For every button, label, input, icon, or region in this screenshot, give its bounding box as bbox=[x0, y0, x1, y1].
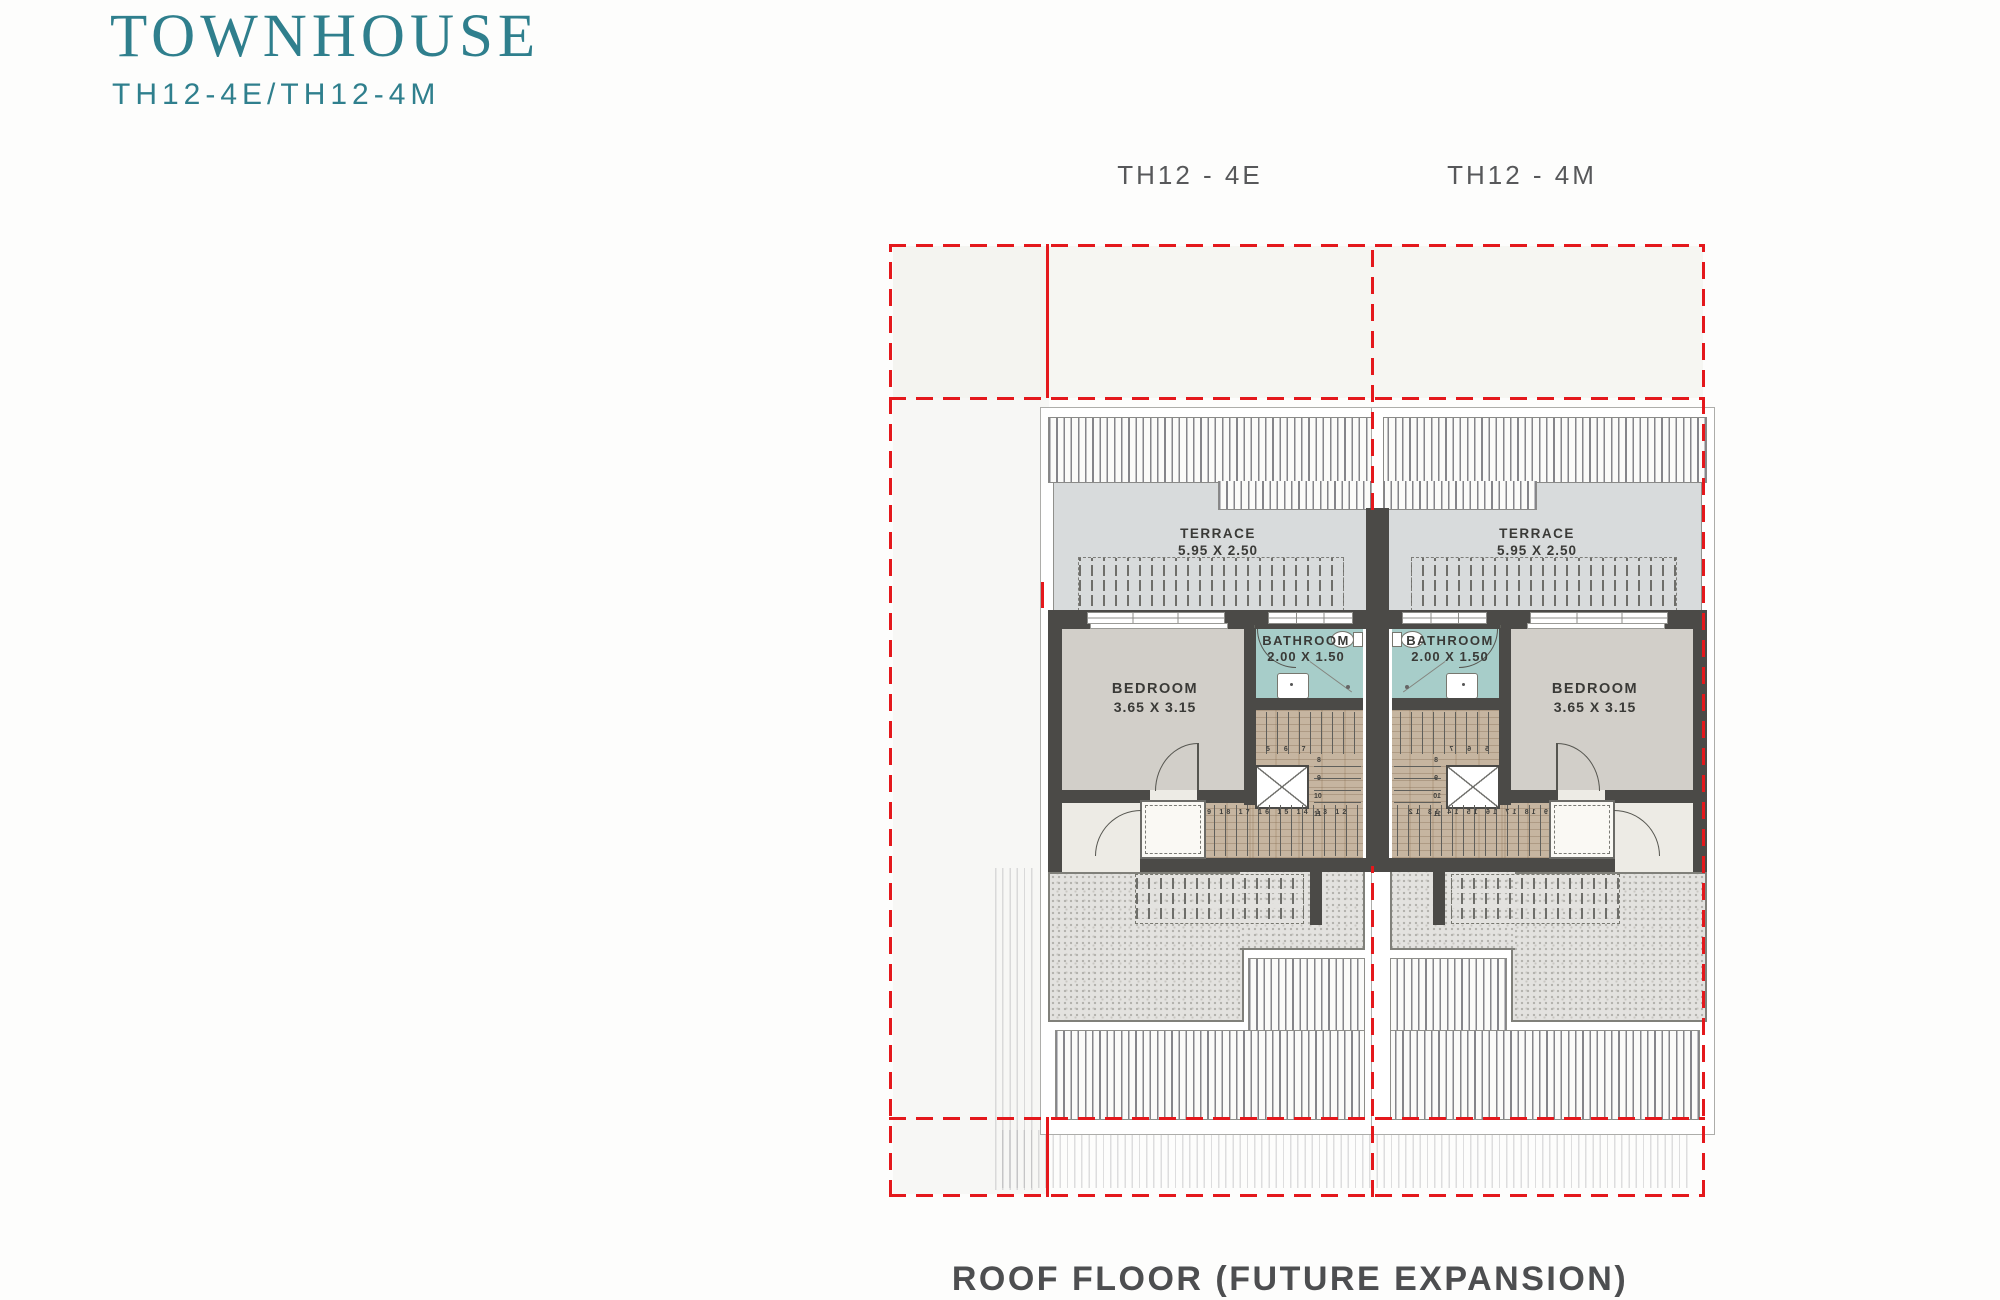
stair-number: 10 bbox=[1433, 793, 1441, 800]
red-boundary-top bbox=[889, 244, 1705, 247]
floorplan-sheet: TOWNHOUSE TH12-4E/TH12-4M TH12 - 4E TH12… bbox=[0, 0, 2000, 1300]
red-boundary-lower bbox=[889, 1117, 1705, 1120]
terrace-door-panel-frame bbox=[1145, 805, 1201, 854]
bathroom-bottom-wall bbox=[1392, 698, 1507, 710]
sink-icon bbox=[1277, 673, 1309, 699]
bedroom-bottom-wall bbox=[1048, 790, 1150, 803]
bottom-wall bbox=[1383, 858, 1615, 872]
unit-plan-th12-4m: 5 6 7 8 9 10 11 19 18 17 16 15 14 13 12 bbox=[1377, 413, 1707, 1153]
room-dims: 5.95 X 2.50 bbox=[1437, 543, 1637, 559]
room-name: TERRACE bbox=[1437, 526, 1637, 542]
room-dims: 3.65 X 3.15 bbox=[1503, 699, 1687, 715]
louver-roof-bottom bbox=[1390, 1030, 1700, 1120]
shower-drain-icon bbox=[1405, 685, 1409, 689]
red-boundary-right bbox=[1702, 244, 1705, 1197]
page-subtitle: TH12-4E/TH12-4M bbox=[112, 78, 440, 112]
sink-drain-icon bbox=[1462, 683, 1465, 686]
bathroom-window bbox=[1402, 612, 1487, 624]
unit-label-th12-4m: TH12 - 4M bbox=[1372, 160, 1672, 191]
sink-icon bbox=[1446, 673, 1478, 699]
room-dims: 3.65 X 3.15 bbox=[1063, 699, 1247, 715]
shower-drain-icon bbox=[1346, 685, 1350, 689]
room-dims: 5.95 X 2.50 bbox=[1118, 543, 1318, 559]
sink-drain-icon bbox=[1290, 683, 1293, 686]
unit-label-th12-4e: TH12 - 4E bbox=[1040, 160, 1340, 191]
stair-number: 10 bbox=[1314, 793, 1322, 800]
stair-numbers-bottom: 19 18 17 16 15 14 13 12 bbox=[1405, 809, 1555, 816]
room-name: BATHROOM bbox=[1394, 634, 1506, 649]
pergola-louver-extension bbox=[1383, 481, 1537, 510]
terrace-door-panel bbox=[1549, 800, 1615, 859]
stair-void-icon bbox=[1446, 765, 1500, 809]
pergola-louver-extension bbox=[1218, 481, 1372, 510]
louver-roof-center bbox=[1390, 958, 1507, 1034]
terrace-door-panel bbox=[1140, 800, 1206, 859]
stair-numbers-bottom: 19 18 17 16 15 14 13 12 bbox=[1200, 809, 1350, 816]
red-party-line-top bbox=[1371, 244, 1374, 510]
stair-numbers-top: 5 6 7 bbox=[1443, 746, 1489, 753]
stair-void-icon bbox=[1255, 765, 1309, 809]
red-boundary-mid bbox=[889, 397, 1705, 400]
bathroom-bottom-wall bbox=[1248, 698, 1363, 710]
terrace-door-panel-frame bbox=[1554, 805, 1610, 854]
pergola-louver-roof bbox=[1048, 417, 1372, 483]
terrace-label-left: TERRACE 5.95 X 2.50 bbox=[1118, 526, 1318, 558]
room-dims: 2.00 X 1.50 bbox=[1394, 650, 1506, 665]
louver-roof-center bbox=[1248, 958, 1365, 1034]
bathroom-window bbox=[1268, 612, 1353, 624]
room-name: BATHROOM bbox=[1250, 634, 1362, 649]
red-boundary-left bbox=[889, 244, 892, 1197]
stair-number: 9 bbox=[1317, 775, 1321, 782]
page-title: TOWNHOUSE bbox=[110, 2, 540, 72]
bedroom-bottom-wall bbox=[1605, 790, 1707, 803]
red-party-line-bottom bbox=[1371, 866, 1374, 1197]
stair-number: 8 bbox=[1434, 757, 1438, 764]
floor-caption: ROOF FLOOR (FUTURE EXPANSION) bbox=[900, 1260, 1680, 1299]
room-name: TERRACE bbox=[1118, 526, 1318, 542]
room-dims: 2.00 X 1.50 bbox=[1250, 650, 1362, 665]
party-wall bbox=[1366, 508, 1389, 872]
wall-stub bbox=[1310, 868, 1322, 925]
outer-wall-left bbox=[1048, 610, 1062, 872]
red-line-inner-mid bbox=[1041, 582, 1044, 608]
bedroom-label-left: BEDROOM 3.65 X 3.15 bbox=[1063, 681, 1247, 715]
trellis-shadow bbox=[1135, 874, 1304, 924]
pergola-louver-roof bbox=[1383, 417, 1707, 483]
terrace-label-right: TERRACE 5.95 X 2.50 bbox=[1437, 526, 1637, 558]
bottom-wall bbox=[1140, 858, 1372, 872]
red-boundary-bottom bbox=[889, 1194, 1705, 1197]
bathroom-label-left: BATHROOM 2.00 X 1.50 bbox=[1250, 634, 1362, 665]
louver-roof-bottom bbox=[1055, 1030, 1365, 1120]
terrace-balustrade bbox=[1078, 557, 1344, 611]
stair-number: 9 bbox=[1434, 775, 1438, 782]
red-line-inner-top bbox=[1046, 244, 1049, 398]
terrace-balustrade bbox=[1411, 557, 1677, 611]
wall-stub bbox=[1433, 868, 1445, 925]
stair-numbers-top: 5 6 7 bbox=[1266, 746, 1312, 753]
red-line-inner-bottom bbox=[1046, 1117, 1049, 1197]
room-name: BEDROOM bbox=[1503, 681, 1687, 698]
bedroom-label-right: BEDROOM 3.65 X 3.15 bbox=[1503, 681, 1687, 715]
bathroom-label-right: BATHROOM 2.00 X 1.50 bbox=[1394, 634, 1506, 665]
stair-number: 8 bbox=[1317, 757, 1321, 764]
room-name: BEDROOM bbox=[1063, 681, 1247, 698]
trellis-shadow bbox=[1451, 874, 1620, 924]
unit-plan-th12-4e: 5 6 7 8 9 10 11 19 18 17 16 15 14 13 12 bbox=[1048, 413, 1378, 1153]
